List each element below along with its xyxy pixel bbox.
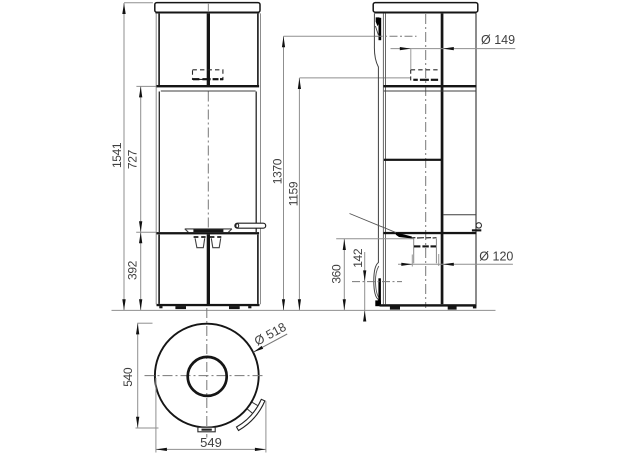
svg-text:1159: 1159 bbox=[287, 181, 301, 206]
svg-text:142: 142 bbox=[351, 248, 365, 268]
svg-text:1541: 1541 bbox=[110, 142, 124, 168]
svg-text:Ø 149: Ø 149 bbox=[481, 33, 515, 47]
svg-text:727: 727 bbox=[126, 149, 140, 169]
svg-text:360: 360 bbox=[330, 264, 344, 284]
svg-text:540: 540 bbox=[121, 367, 135, 387]
svg-text:549: 549 bbox=[200, 435, 222, 450]
svg-text:Ø 120: Ø 120 bbox=[479, 250, 513, 264]
svg-text:392: 392 bbox=[126, 260, 140, 280]
svg-text:1370: 1370 bbox=[270, 158, 284, 184]
